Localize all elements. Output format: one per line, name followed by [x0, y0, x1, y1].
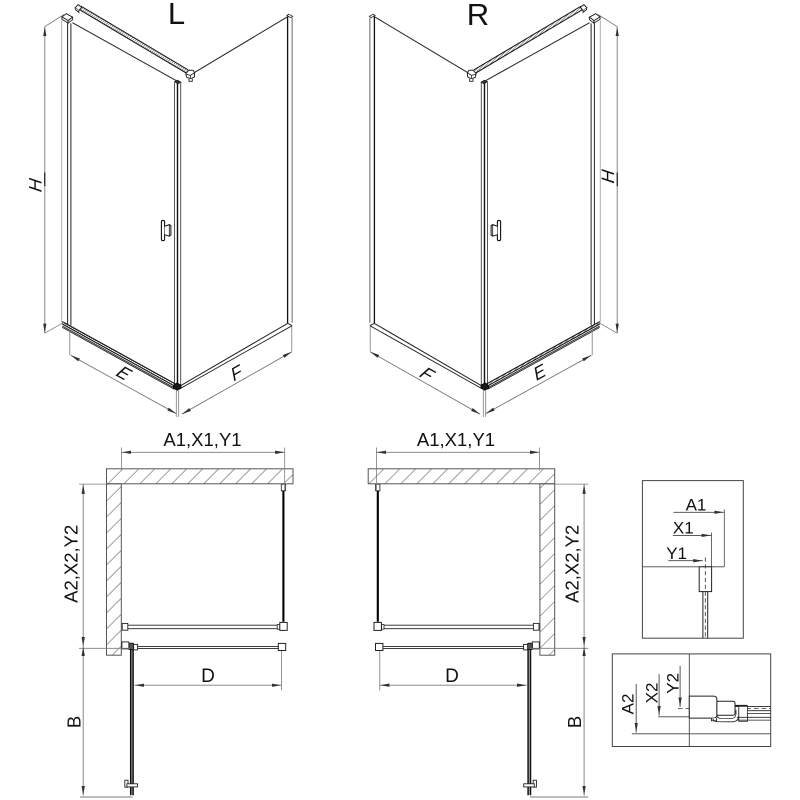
svg-text:B: B [64, 716, 85, 728]
svg-text:A1: A1 [686, 496, 707, 515]
svg-text:B: B [564, 716, 585, 728]
svg-text:D: D [445, 666, 459, 687]
svg-text:A2: A2 [619, 694, 638, 715]
svg-text:H: H [26, 176, 46, 193]
svg-text:A1,X1,Y1: A1,X1,Y1 [417, 429, 495, 450]
svg-text:A2,X2,Y2: A2,X2,Y2 [61, 525, 82, 603]
svg-text:E: E [531, 360, 549, 385]
svg-text:Y1: Y1 [666, 544, 687, 563]
svg-text:X1: X1 [673, 519, 694, 538]
svg-text:H: H [598, 168, 618, 185]
svg-text:D: D [201, 666, 215, 687]
svg-text:E: E [113, 362, 136, 384]
svg-text:R: R [467, 0, 489, 32]
svg-text:F: F [416, 363, 439, 385]
svg-text:Y2: Y2 [664, 673, 683, 694]
svg-text:A1,X1,Y1: A1,X1,Y1 [163, 429, 241, 450]
svg-text:F: F [228, 361, 246, 386]
svg-text:A2,X2,Y2: A2,X2,Y2 [562, 525, 583, 603]
svg-text:L: L [168, 0, 185, 31]
svg-text:X2: X2 [643, 683, 662, 704]
